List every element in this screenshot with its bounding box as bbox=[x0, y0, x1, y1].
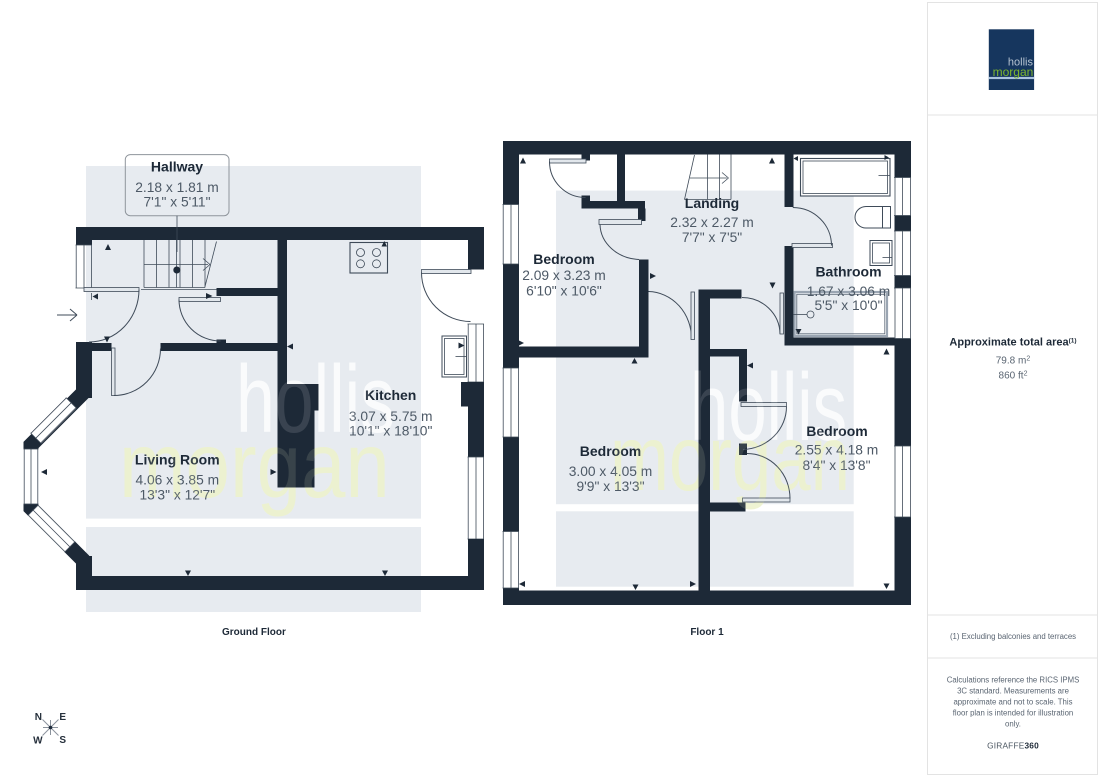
svg-text:6'10" x 10'6": 6'10" x 10'6" bbox=[526, 284, 602, 299]
svg-text:only.: only. bbox=[1005, 720, 1021, 729]
svg-text:Hallway: Hallway bbox=[151, 159, 203, 175]
svg-text:3C standard. Measurements are: 3C standard. Measurements are bbox=[957, 687, 1069, 696]
svg-text:Kitchen: Kitchen bbox=[365, 387, 416, 403]
svg-text:7'7" x 7'5": 7'7" x 7'5" bbox=[682, 230, 742, 245]
svg-text:8'4" x 13'8": 8'4" x 13'8" bbox=[803, 458, 871, 473]
svg-text:S: S bbox=[59, 735, 66, 746]
svg-text:13'3" x 12'7": 13'3" x 12'7" bbox=[139, 488, 215, 503]
svg-text:4.06 x 3.85 m: 4.06 x 3.85 m bbox=[135, 473, 219, 488]
svg-text:3.07 x 5.75 m: 3.07 x 5.75 m bbox=[349, 409, 433, 424]
svg-text:Calculations reference the RIC: Calculations reference the RICS IPMS bbox=[947, 676, 1080, 685]
svg-text:860 ft2: 860 ft2 bbox=[999, 371, 1028, 382]
svg-text:2.09 x 3.23 m: 2.09 x 3.23 m bbox=[522, 268, 606, 283]
svg-text:Bedroom: Bedroom bbox=[533, 251, 594, 267]
svg-text:Approximate total area(1): Approximate total area(1) bbox=[949, 337, 1076, 349]
svg-text:Bathroom: Bathroom bbox=[815, 264, 881, 280]
svg-text:Bedroom: Bedroom bbox=[580, 443, 641, 459]
svg-text:floor plan is intended for ill: floor plan is intended for illustration bbox=[953, 709, 1074, 718]
svg-text:79.8 m2: 79.8 m2 bbox=[996, 356, 1031, 367]
svg-text:10'1" x 18'10": 10'1" x 18'10" bbox=[349, 424, 432, 439]
svg-text:W: W bbox=[33, 736, 43, 747]
svg-text:5'5" x 10'0": 5'5" x 10'0" bbox=[815, 298, 883, 313]
svg-text:GIRAFFE360: GIRAFFE360 bbox=[987, 741, 1039, 751]
svg-text:2.18 x 1.81 m: 2.18 x 1.81 m bbox=[135, 180, 219, 195]
svg-text:2.55 x 4.18 m: 2.55 x 4.18 m bbox=[795, 443, 879, 458]
svg-text:E: E bbox=[59, 712, 66, 723]
svg-text:morgan: morgan bbox=[993, 65, 1034, 79]
svg-text:(1) Excluding balconies and te: (1) Excluding balconies and terraces bbox=[950, 632, 1076, 641]
svg-text:Ground Floor: Ground Floor bbox=[222, 627, 286, 638]
svg-text:Bedroom: Bedroom bbox=[806, 423, 867, 439]
svg-text:2.32 x 2.27 m: 2.32 x 2.27 m bbox=[670, 215, 754, 230]
svg-text:Living Room: Living Room bbox=[135, 452, 220, 468]
svg-text:approximate and not to scale.: approximate and not to scale. This bbox=[953, 698, 1072, 707]
svg-text:9'9" x 13'3": 9'9" x 13'3" bbox=[577, 479, 645, 494]
svg-text:Floor 1: Floor 1 bbox=[690, 627, 724, 638]
svg-text:1.67 x 3.06 m: 1.67 x 3.06 m bbox=[807, 284, 891, 299]
svg-text:3.00 x 4.05 m: 3.00 x 4.05 m bbox=[569, 464, 653, 479]
svg-text:N: N bbox=[35, 712, 42, 723]
svg-text:7'1" x 5'11": 7'1" x 5'11" bbox=[144, 195, 211, 210]
svg-text:Landing: Landing bbox=[685, 195, 739, 211]
